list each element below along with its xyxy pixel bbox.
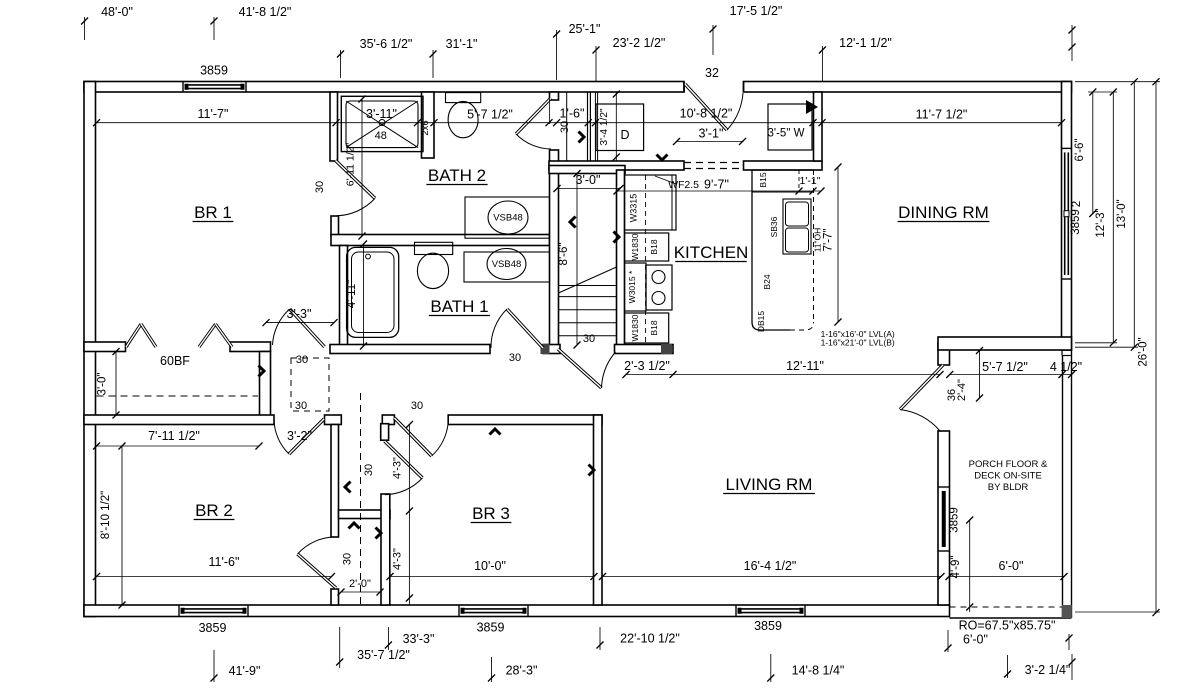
svg-text:3'-0": 3'-0" (97, 373, 109, 396)
svg-text:BATH 1: BATH 1 (430, 297, 488, 316)
svg-text:3859: 3859 (754, 619, 782, 633)
svg-text:1'-6": 1'-6" (560, 107, 585, 121)
svg-text:VSB48: VSB48 (493, 213, 523, 224)
svg-text:4'-9": 4'-9" (950, 556, 962, 579)
svg-text:26'-0": 26'-0" (1138, 337, 1150, 366)
svg-text:B18: B18 (649, 239, 659, 254)
svg-text:14'-8 1/4": 14'-8 1/4" (792, 664, 845, 678)
svg-text:5'-7 1/2": 5'-7 1/2" (467, 108, 513, 122)
svg-text:31'-1": 31'-1" (446, 37, 478, 51)
svg-text:RO=67.5"x85.75": RO=67.5"x85.75" (959, 619, 1056, 633)
svg-text:48'-0": 48'-0" (101, 5, 133, 19)
svg-text:33'-3": 33'-3" (403, 632, 435, 646)
svg-text:16'-4 1/2": 16'-4 1/2" (744, 559, 797, 573)
svg-text:23'-2 1/2": 23'-2 1/2" (613, 36, 666, 50)
svg-text:3'-2": 3'-2" (287, 429, 312, 443)
svg-text:3'-5" W: 3'-5" W (768, 128, 805, 140)
svg-text:35'-6 1/2": 35'-6 1/2" (360, 37, 413, 51)
svg-text:28'-3": 28'-3" (506, 664, 538, 678)
svg-text:B15: B15 (758, 172, 768, 187)
svg-text:5'-7 1/2": 5'-7 1/2" (982, 360, 1028, 374)
svg-text:41'-8 1/2": 41'-8 1/2" (239, 5, 292, 19)
svg-text:30: 30 (509, 352, 521, 364)
svg-text:10'-0": 10'-0" (474, 559, 506, 573)
svg-text:3859: 3859 (1070, 209, 1082, 235)
svg-text:6'-0": 6'-0" (999, 559, 1024, 573)
svg-text:BY BLDR: BY BLDR (988, 482, 1029, 493)
svg-text:6'-11 1/2": 6'-11 1/2" (345, 142, 357, 186)
svg-text:W1830: W1830 (630, 314, 640, 341)
svg-text:25'-1": 25'-1" (569, 22, 601, 36)
svg-text:30: 30 (342, 553, 354, 565)
svg-text:W3315: W3315 (629, 194, 639, 223)
svg-text:41'-9": 41'-9" (229, 664, 261, 678)
svg-text:3859: 3859 (477, 621, 505, 635)
svg-text:2: 2 (1071, 201, 1083, 207)
svg-text:4'-3": 4'-3" (392, 457, 404, 479)
svg-text:3'-4 1/2": 3'-4 1/2" (599, 108, 610, 146)
svg-text:11'-7": 11'-7" (198, 107, 229, 121)
svg-text:36: 36 (946, 389, 958, 401)
svg-text:3859: 3859 (199, 621, 227, 635)
svg-text:9'-7": 9'-7" (704, 178, 729, 192)
svg-text:17'-5 1/2": 17'-5 1/2" (730, 4, 783, 18)
svg-text:B24: B24 (762, 274, 772, 289)
svg-text:11'-6": 11'-6" (209, 555, 240, 569)
svg-text:22'-10 1/2": 22'-10 1/2" (620, 632, 680, 646)
svg-text:PORCH FLOOR &: PORCH FLOOR & (969, 459, 1048, 470)
svg-text:30: 30 (411, 400, 423, 412)
svg-text:KITCHEN: KITCHEN (674, 243, 749, 262)
svg-text:3'-3": 3'-3" (287, 307, 312, 321)
svg-text:VSB48: VSB48 (492, 259, 522, 270)
svg-text:3'-1": 3'-1" (699, 127, 724, 141)
svg-text:D: D (620, 128, 629, 142)
svg-text:4 1/2": 4 1/2" (1050, 360, 1082, 374)
svg-text:30: 30 (559, 121, 571, 133)
svg-text:48: 48 (375, 130, 387, 142)
svg-text:SB36: SB36 (769, 216, 779, 237)
svg-text:4'-3": 4'-3" (392, 548, 404, 570)
svg-text:32: 32 (705, 66, 719, 80)
svg-text:8'-6": 8'-6" (558, 243, 570, 266)
svg-text:7'-11 1/2": 7'-11 1/2" (148, 429, 200, 443)
svg-text:2x6: 2x6 (420, 120, 431, 135)
svg-text:11"OH: 11"OH (813, 228, 823, 253)
svg-text:DINING RM: DINING RM (898, 203, 989, 222)
svg-text:30: 30 (583, 333, 595, 345)
svg-text:LIVING RM: LIVING RM (726, 475, 813, 494)
svg-text:35'-7 1/2": 35'-7 1/2" (357, 648, 410, 662)
svg-text:10'-8 1/2": 10'-8 1/2" (680, 107, 733, 121)
svg-text:3859: 3859 (949, 507, 961, 533)
svg-text:4'-11": 4'-11" (346, 280, 358, 308)
svg-text:W3015 *: W3015 * (627, 270, 637, 303)
svg-text:30: 30 (295, 400, 307, 412)
svg-text:30: 30 (314, 181, 326, 193)
svg-text:30: 30 (363, 464, 375, 476)
svg-text:BATH 2: BATH 2 (428, 166, 486, 185)
svg-text:WF2.5: WF2.5 (668, 179, 699, 191)
svg-text:12'-1 1/2": 12'-1 1/2" (839, 36, 892, 50)
svg-text:DECK ON-SITE: DECK ON-SITE (974, 471, 1042, 482)
svg-text:13'-0": 13'-0" (1116, 199, 1128, 228)
svg-text:12'-11": 12'-11" (786, 359, 824, 373)
svg-text:30: 30 (296, 354, 308, 366)
svg-text:W1830: W1830 (630, 233, 640, 260)
svg-text:3'-0": 3'-0" (576, 173, 601, 187)
svg-text:6'-0": 6'-0" (963, 633, 988, 647)
svg-text:2'-3 1/2": 2'-3 1/2" (624, 359, 670, 373)
svg-text:BR 2: BR 2 (195, 501, 233, 520)
svg-text:11'-7 1/2": 11'-7 1/2" (916, 108, 968, 122)
svg-text:2'-0": 2'-0" (349, 578, 371, 590)
svg-text:12'-3": 12'-3" (1095, 208, 1107, 237)
svg-text:BR 3: BR 3 (472, 504, 510, 523)
svg-text:60BF: 60BF (160, 354, 190, 368)
svg-text:3'-11": 3'-11" (366, 107, 397, 121)
svg-text:DB15: DB15 (756, 311, 766, 333)
svg-text:1-16"x21'-0" LVL(B): 1-16"x21'-0" LVL(B) (821, 338, 895, 348)
svg-text:B18: B18 (649, 320, 659, 335)
svg-text:6'-6": 6'-6" (1074, 139, 1086, 162)
svg-text:3859: 3859 (200, 64, 228, 78)
svg-text:BR 1: BR 1 (194, 203, 232, 222)
svg-text:3'-2 1/4": 3'-2 1/4" (1025, 663, 1071, 677)
svg-text:8'-10 1/2": 8'-10 1/2" (100, 491, 112, 539)
svg-text:7'-7": 7'-7" (823, 229, 835, 252)
svg-text:1'-1": 1'-1" (800, 175, 821, 187)
